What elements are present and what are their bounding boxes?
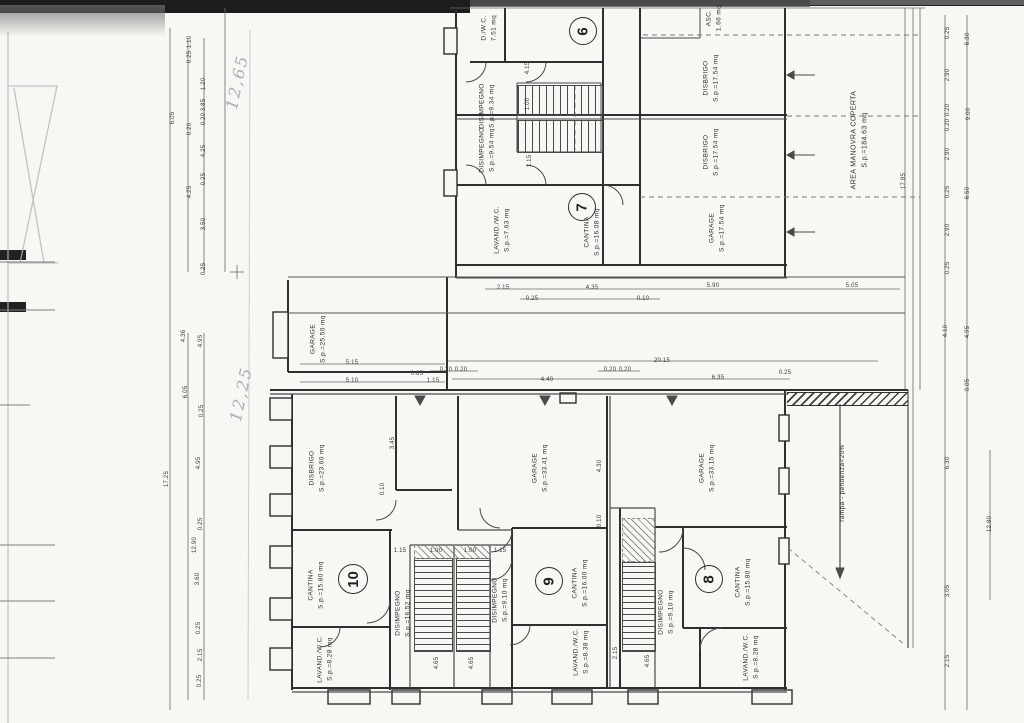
room-label-disbrigo-upper: DISBRIGO S.p.=17.54 mq <box>701 54 721 102</box>
unit-number: 9 <box>541 577 558 585</box>
room-label-u10-lavand: LAVAND./W.C. S.p.=8.28 mq <box>315 635 335 683</box>
room-label-u7-disimpegno: DISIMPEGNO S.p.=9.54 mq <box>477 127 497 173</box>
room-label-area-manovra: AREA MANOVRA COPERTA S.p.=184.63 mq <box>850 91 871 190</box>
unit-number: 6 <box>575 27 592 35</box>
pencil-marks <box>8 32 58 723</box>
room-label-u7-garage: GARAGE S.p.=17.54 mq <box>707 204 727 252</box>
room-label-u6-disimpegno: DISIMPEGNO S.p.=9.34 mq <box>477 83 497 129</box>
room-label-u10-cantina: CANTINA S.p.=15.80 mq <box>306 561 326 609</box>
room-label-rampa: rampa - pendenza<20% <box>838 444 848 522</box>
stairs-unit9-flight <box>456 558 491 652</box>
unit-circle-6: 6 <box>569 17 597 45</box>
room-label-garage-centrale: GARAGE S.p.=25.50 mq <box>308 315 328 363</box>
unit-circle-8: 8 <box>695 565 723 593</box>
middle-garage-walls <box>273 277 447 390</box>
stairs-unit8-flight <box>622 562 656 652</box>
room-label-u8-garage: GARAGE S.p.=33.15 mq <box>697 444 717 492</box>
room-label-u8-cantina: CANTINA S.p.=15.80 mq <box>733 558 753 606</box>
room-label-u10-disimpegno: DISIMPEGNO S.p.=16.52 mq <box>393 589 413 637</box>
room-label-u6-wc: D./W.C. 7.51 mq <box>479 15 499 41</box>
stairs-upper-flight-b <box>517 120 603 153</box>
room-label-u7-lavand: LAVAND./W.C. S.p.=7.63 mq <box>492 206 512 254</box>
floor-plan-scan: 6 7 8 9 10 D./W.C. 7.51 mq DISIMPEGNO S.… <box>0 0 1024 723</box>
unit-circle-9: 9 <box>535 567 563 595</box>
room-label-u7-cantina: CANTINA S.p.=16.08 mq <box>582 208 602 256</box>
pencil-chain-line <box>248 30 250 700</box>
unit-circle-10: 10 <box>338 564 368 594</box>
stairs-unit10-flight <box>414 558 453 652</box>
room-label-u9-cantina: CANTINA S.p.=16.00 mq <box>570 559 590 607</box>
unit-number: 10 <box>345 571 362 588</box>
room-label-u8-disimpegno: DISIMPEGNO S.p.=9.10 mq <box>656 589 676 635</box>
stairs-upper-flight-a <box>517 85 603 116</box>
room-label-u9-disimpegno: DISIMPEGNO S.p.=9.10 mq <box>490 577 510 623</box>
stairs-unit10-9-landing <box>414 545 491 559</box>
unit-number: 8 <box>701 575 718 583</box>
corridor-lines <box>288 277 905 313</box>
room-label-disbrigo-lower: DISBRIGO S.p.=17.54 mq <box>701 128 721 176</box>
ramp-hatch-strip <box>787 392 908 406</box>
room-label-u9-lavand: LAVAND./W.C. S.p.=8.38 mq <box>571 628 591 676</box>
stairs-unit8-landing <box>622 518 656 562</box>
room-label-asc: ASC. 1.66 mq <box>704 5 724 31</box>
room-label-u8-lavand: LAVAND./W.C. S.p.=8.28 mq <box>741 633 761 681</box>
room-label-u10-disbrigo: DISBRIGO S.p.=23.60 mq <box>307 444 327 492</box>
room-label-u9-garage: GARAGE S.p.=33.41 mq <box>530 444 550 492</box>
